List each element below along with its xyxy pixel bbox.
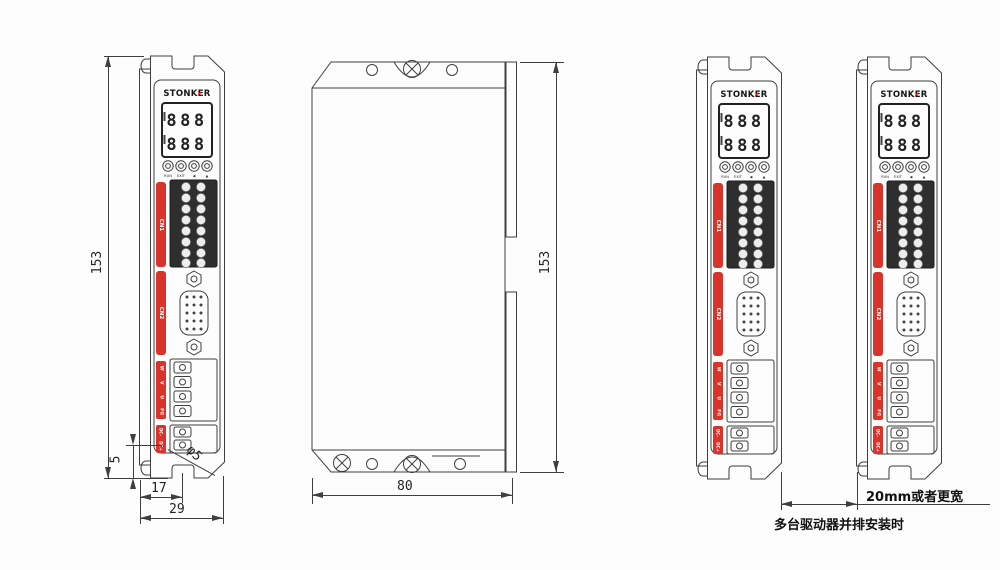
dsub-pins: [903, 297, 920, 332]
side-flange-lower: [506, 292, 517, 472]
logo-star-icon: ✕: [754, 91, 760, 99]
left-arrow-button-label: ◀: [193, 174, 196, 178]
display-tick: [721, 136, 723, 145]
exit-button-label: EXIT: [177, 174, 186, 178]
dim-ext-line: [104, 478, 168, 479]
hex-standoff-top: [904, 272, 918, 288]
dim-line: [108, 56, 109, 478]
view-pair-right: STONKER ✕ 888 888 RUN EXIT ◀ ▲ CN1: [855, 56, 943, 480]
run-button-label: RUN: [721, 175, 729, 179]
top-screw-boss: [698, 60, 708, 74]
dim-arrowhead: [553, 461, 559, 472]
spacing-caption-label: 多台驱动器并排安装时: [774, 514, 904, 533]
run-button-label: RUN: [164, 174, 172, 178]
mounting-flange: [857, 70, 868, 466]
brand-text: STONKER: [720, 90, 767, 100]
dim-arrowhead: [105, 467, 111, 478]
view-side-left: STONKER ✕ 888 888 RUN EXIT ◀ ▲ CN1: [138, 55, 226, 479]
terminal-label-dc-plus: DC+: [159, 441, 164, 451]
mounting-flange: [697, 70, 708, 466]
view-pair-left: STONKER ✕ 888 888 RUN EXIT ◀ ▲ CN1: [695, 56, 783, 480]
front-body: [312, 62, 517, 472]
dim-line: [556, 62, 557, 472]
motor-terminal-block: [727, 360, 774, 422]
display-tick: [164, 135, 166, 144]
dim-arrowhead: [105, 56, 111, 67]
terminal-label-u: U: [716, 396, 722, 400]
mounting-screws: [334, 61, 421, 473]
display-tick: [721, 113, 723, 122]
cn2-label: CN2: [158, 307, 164, 320]
display-row-2: 888: [166, 135, 207, 155]
top-screw-boss: [141, 59, 151, 73]
terminal-label-v: V: [159, 381, 165, 385]
terminal-label-u: U: [159, 395, 165, 399]
dim-arrowhead: [312, 492, 323, 498]
brand-logo: STONKER ✕: [163, 89, 210, 99]
technical-drawing-canvas: STONKER ✕ 888 888 RUN EXIT ◀ ▲ CN1: [0, 0, 1000, 570]
spacing-note-label: 20mm或者更宽: [866, 486, 963, 505]
dim-ext-line: [223, 476, 224, 524]
terminal-label-dc-plus: DC+: [876, 442, 881, 452]
display-row-1: 888: [883, 112, 924, 132]
driver-front-view: [310, 58, 518, 476]
dim-side-height-label: 153: [90, 251, 105, 274]
run-button-label: RUN: [881, 175, 889, 179]
display-row-2: 888: [723, 136, 764, 156]
display-row-1: 888: [723, 112, 764, 132]
dc-terminal-block: [727, 426, 774, 454]
bottom-screw-boss: [141, 461, 151, 475]
panel-buttons[interactable]: [720, 162, 769, 172]
hex-standoff-top: [744, 272, 758, 288]
terminal-label-v: V: [716, 382, 722, 386]
terminal-label-fg: FG: [716, 409, 722, 416]
left-arrow-button-label: ◀: [910, 175, 913, 179]
terminal-label-fg: FG: [159, 408, 165, 415]
dim-line: [140, 518, 223, 519]
brand-text: STONKER: [880, 90, 927, 100]
display-row-1: 888: [166, 111, 207, 131]
terminal-label-u: U: [876, 396, 882, 400]
display-row-2: 888: [883, 136, 924, 156]
display-tick: [164, 112, 166, 121]
cn2-label: CN2: [875, 308, 881, 321]
terminal-label-w: W: [716, 367, 722, 372]
hex-standoff-top: [187, 271, 201, 287]
dim-front-width-label: 80: [397, 479, 413, 494]
left-arrow-button-label: ◀: [750, 175, 753, 179]
dim-arrowhead: [781, 501, 792, 507]
dim-ext-line: [520, 472, 564, 473]
front-body-outline: [312, 62, 505, 472]
cn1-terminal-block: [727, 181, 774, 269]
dim-front-height-label: 153: [538, 251, 553, 274]
dim-arrowhead: [140, 515, 151, 521]
hex-standoff-bottom: [744, 340, 758, 356]
cn2-label: CN2: [715, 308, 721, 321]
up-arrow-button-label: ▲: [923, 175, 926, 179]
dim-arrowhead: [501, 492, 512, 498]
exit-button-label: EXIT: [734, 175, 743, 179]
terminal-label-v: V: [876, 382, 882, 386]
cn1-terminal-block: [170, 180, 217, 268]
hex-standoff-bottom: [187, 339, 201, 355]
panel-buttons[interactable]: [163, 161, 212, 171]
side-flange-upper: [506, 62, 517, 237]
brand-text: STONKER: [163, 89, 210, 99]
terminal-label-dc-minus: DC-: [876, 429, 881, 437]
exit-button-label: EXIT: [894, 175, 903, 179]
terminal-label-dc-plus: DC+: [716, 442, 721, 452]
cn1-label: CN1: [158, 219, 164, 232]
driver-side-view: STONKER ✕ 888 888 RUN EXIT ◀ ▲ CN1: [138, 55, 226, 479]
terminal-label-dc-minus: DC-: [159, 428, 164, 436]
dim-arrowhead: [212, 515, 223, 521]
hex-standoff-bottom: [904, 340, 918, 356]
terminal-label-dc-minus: DC-: [716, 429, 721, 437]
dim-arrowhead: [553, 62, 559, 73]
dim-arrowhead: [171, 494, 182, 500]
motor-terminal-block: [170, 359, 217, 421]
dim-arrowhead: [846, 501, 857, 507]
cn1-terminal-block: [887, 181, 934, 269]
terminal-label-w: W: [159, 366, 165, 371]
logo-star-icon: ✕: [197, 90, 203, 98]
display-tick: [881, 136, 883, 145]
bottom-screw-boss: [858, 462, 868, 476]
dsub-pins: [186, 296, 203, 331]
terminal-label-w: W: [876, 367, 882, 372]
brand-logo: STONKER ✕: [880, 90, 927, 100]
dim-foot-offset-label: 5: [108, 456, 123, 464]
bottom-screw-boss: [698, 462, 708, 476]
view-front: [310, 58, 518, 476]
driver-side-view: STONKER ✕ 888 888 RUN EXIT ◀ ▲ CN1: [855, 56, 943, 480]
terminal-label-fg: FG: [876, 409, 882, 416]
cn1-label: CN1: [715, 220, 721, 233]
dsub-pins: [743, 297, 760, 332]
dim-arrowhead: [140, 494, 151, 500]
top-screw-boss: [858, 60, 868, 74]
dim-ext-line: [512, 478, 513, 504]
dim-arrowhead: [130, 434, 136, 445]
dim-line: [312, 495, 512, 496]
dim-mount-width-label: 17: [151, 481, 167, 496]
display-tick: [881, 113, 883, 122]
dim-ext-line: [182, 473, 183, 503]
logo-star-icon: ✕: [914, 91, 920, 99]
mounting-flange: [140, 69, 151, 465]
dim-total-depth-label: 29: [169, 502, 185, 517]
up-arrow-button-label: ▲: [763, 175, 766, 179]
mounting-holes: [367, 65, 466, 470]
cn1-label: CN1: [875, 220, 881, 233]
brand-logo: STONKER ✕: [720, 90, 767, 100]
dim-line: [133, 445, 134, 478]
motor-terminal-block: [887, 360, 934, 422]
panel-buttons[interactable]: [880, 162, 929, 172]
dim-ext-line: [126, 445, 162, 446]
driver-side-view: STONKER ✕ 888 888 RUN EXIT ◀ ▲ CN1: [695, 56, 783, 480]
up-arrow-button-label: ▲: [206, 174, 209, 178]
dc-terminal-block: [887, 426, 934, 454]
dim-arrowhead: [130, 478, 136, 489]
